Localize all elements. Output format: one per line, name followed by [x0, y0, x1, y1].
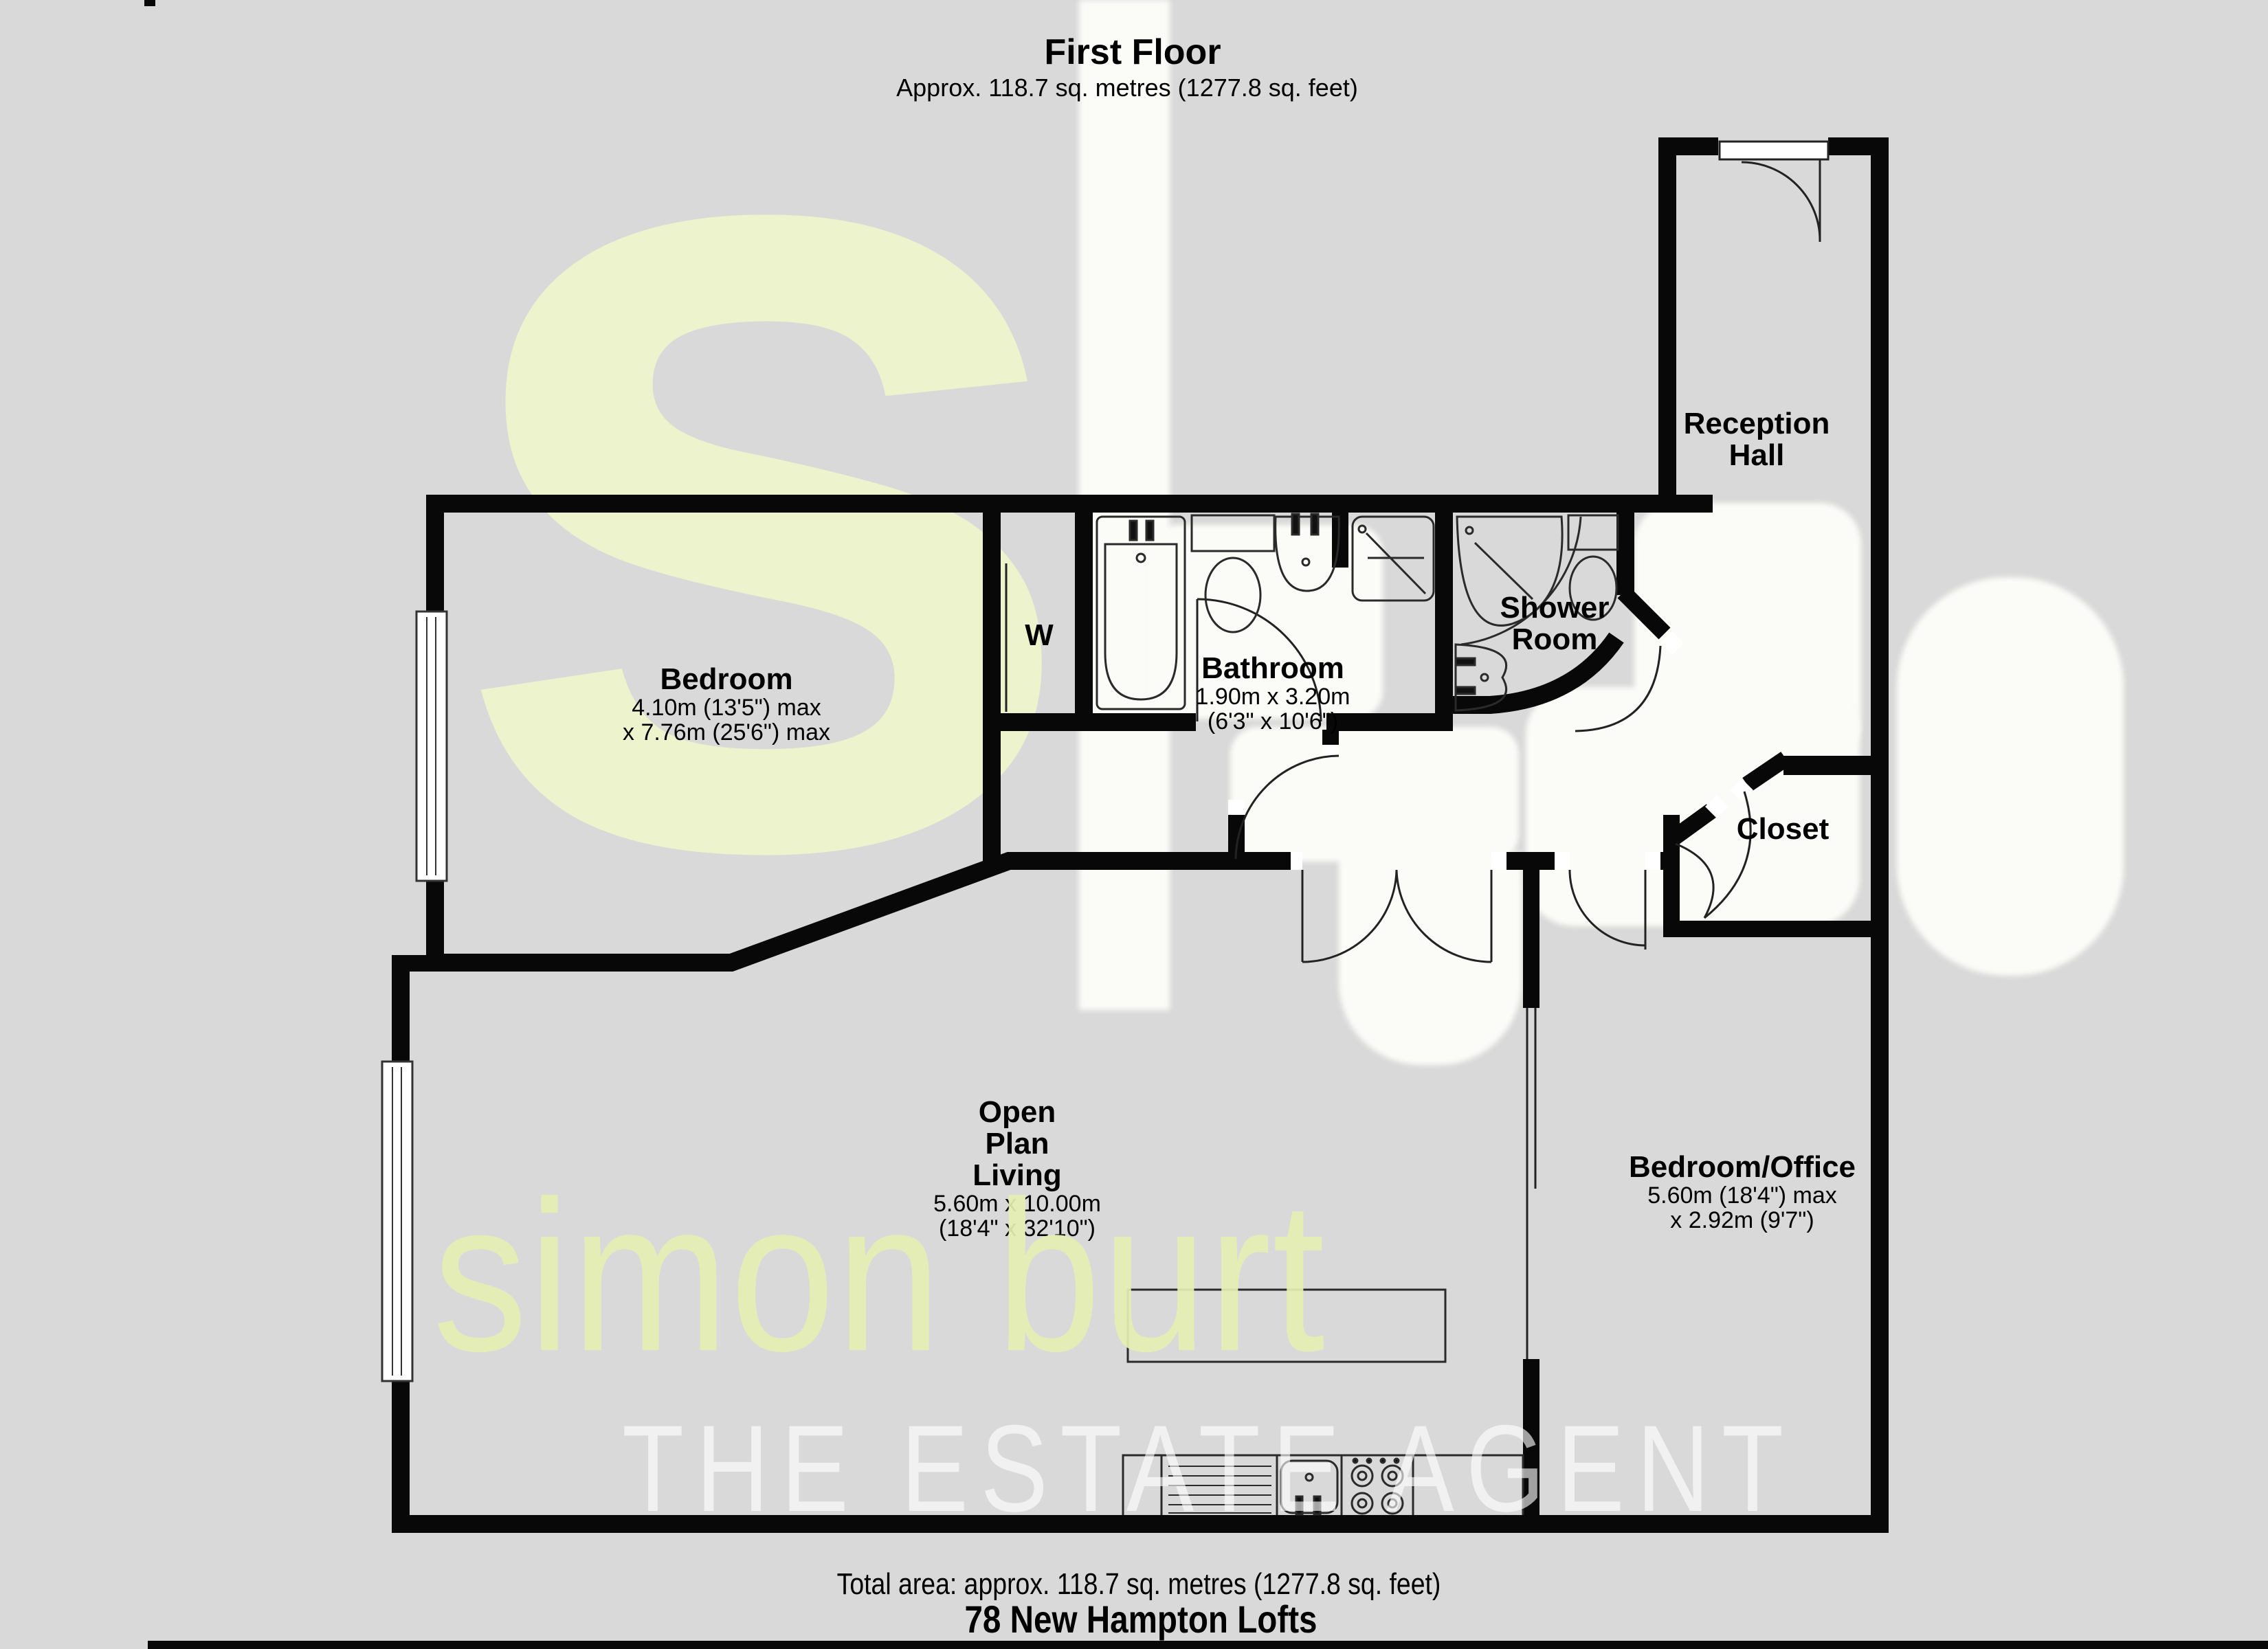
label-closet: Closet [1737, 814, 1829, 845]
label-shower-room: Shower Room [1500, 592, 1610, 655]
label-open-plan-living: Open Plan Living 5.60m x 10.00m (18'4" x… [933, 1097, 1101, 1241]
label-bathroom: Bathroom 1.90m x 3.20m (6'3" x 10'6") [1196, 653, 1350, 734]
labels-layer: First Floor Approx. 118.7 sq. metres (12… [0, 0, 2268, 1649]
floorplan-page: { "header": { "title": "First Floor", "s… [0, 0, 2268, 1649]
page-title: First Floor [1044, 33, 1221, 71]
floor-title: First Floor [1044, 33, 1221, 71]
label-bedroom-office: Bedroom/Office 5.60m (18'4") max x 2.92m… [1629, 1152, 1856, 1233]
total-area-text: Total area: approx. 118.7 sq. metres (12… [837, 1568, 1441, 1601]
label-reception-hall: Reception Hall [1684, 408, 1830, 471]
floor-area: Approx. 118.7 sq. metres (1277.8 sq. fee… [896, 74, 1358, 102]
address-text: 78 New Hampton Lofts [964, 1600, 1317, 1639]
label-bedroom: Bedroom 4.10m (13'5") max x 7.76m (25'6"… [623, 664, 830, 745]
page-subtitle: Approx. 118.7 sq. metres (1277.8 sq. fee… [896, 74, 1358, 102]
label-wardrobe: W [1025, 620, 1054, 651]
